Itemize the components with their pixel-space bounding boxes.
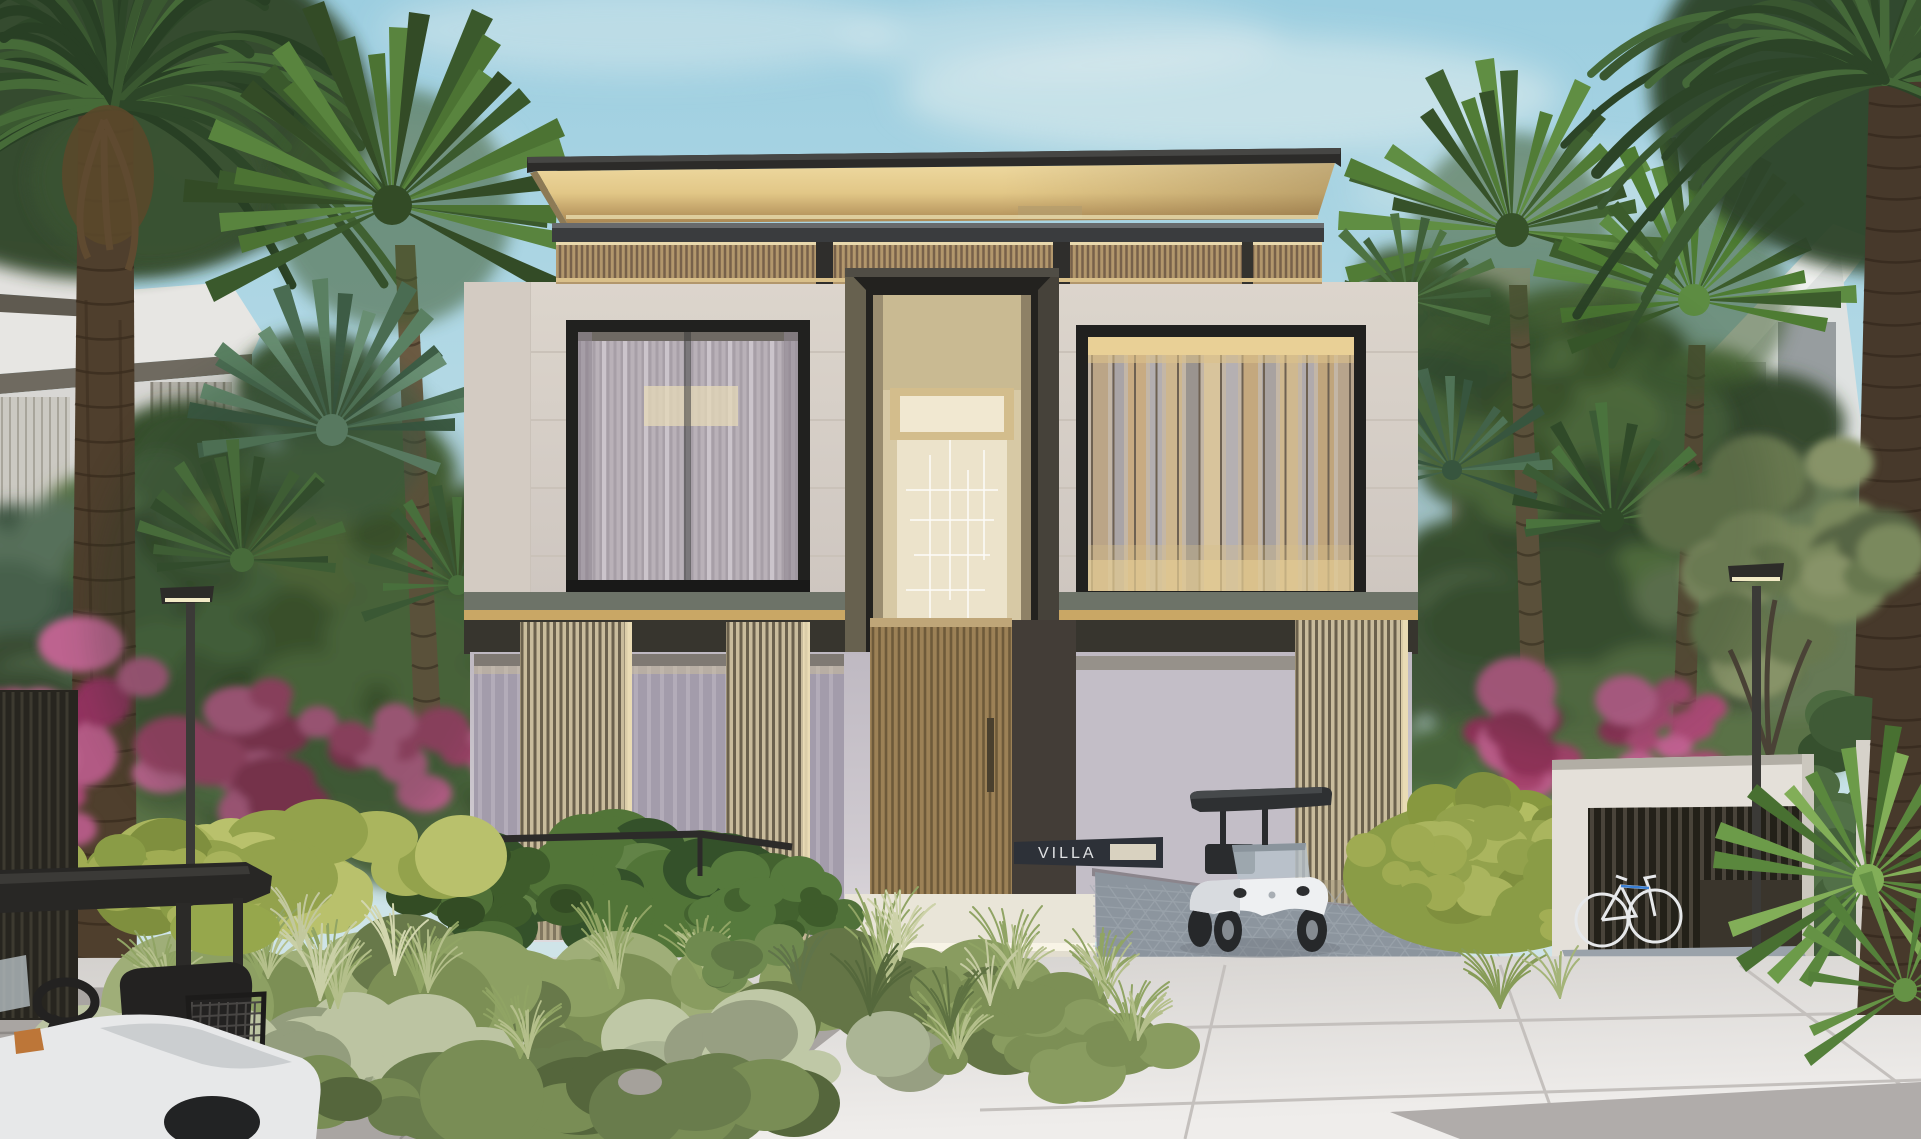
svg-text:VILLA: VILLA (1038, 845, 1097, 862)
